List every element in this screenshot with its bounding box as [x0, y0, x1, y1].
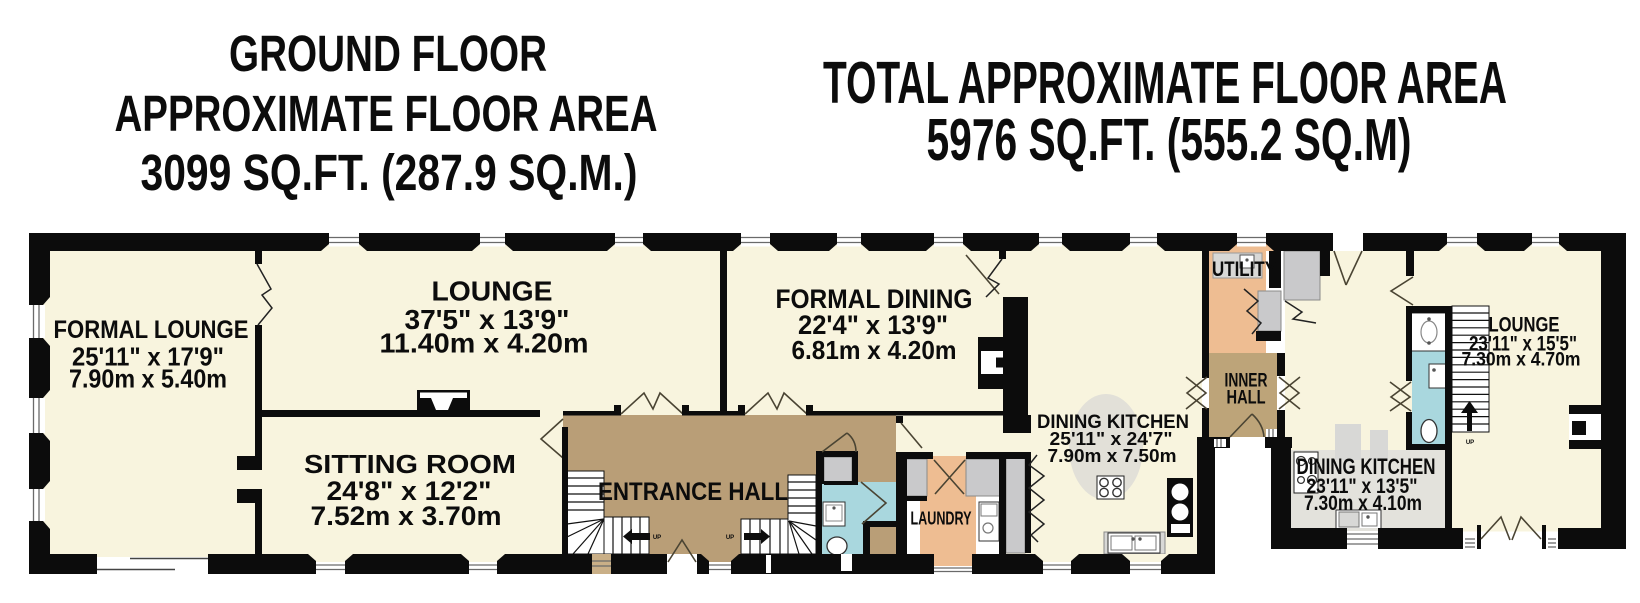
- svg-text:3099 SQ.FT. (287.9 SQ.M.): 3099 SQ.FT. (287.9 SQ.M.): [141, 144, 638, 201]
- svg-text:UTILITY: UTILITY: [1212, 258, 1276, 281]
- svg-text:7.30m x 4.10m: 7.30m x 4.10m: [1304, 492, 1422, 515]
- svg-text:LOUNGE: LOUNGE: [432, 276, 553, 307]
- svg-text:HALL: HALL: [1227, 388, 1266, 409]
- svg-text:ENTRANCE HALL: ENTRANCE HALL: [598, 478, 788, 506]
- svg-text:FORMAL LOUNGE: FORMAL LOUNGE: [54, 316, 249, 344]
- svg-text:5976 SQ.FT. (555.2 SQ.M): 5976 SQ.FT. (555.2 SQ.M): [927, 107, 1412, 173]
- svg-text:UP: UP: [1466, 440, 1474, 446]
- svg-text:7.90m x 5.40m: 7.90m x 5.40m: [69, 364, 227, 394]
- svg-text:7.90m x 7.50m: 7.90m x 7.50m: [1048, 445, 1177, 466]
- svg-text:7.30m x 4.70m: 7.30m x 4.70m: [1462, 350, 1581, 371]
- svg-text:6.81m x 4.20m: 6.81m x 4.20m: [792, 335, 957, 365]
- svg-text:GROUND FLOOR: GROUND FLOOR: [229, 25, 547, 82]
- svg-text:APPROXIMATE FLOOR AREA: APPROXIMATE FLOOR AREA: [115, 85, 658, 142]
- svg-text:7.52m x 3.70m: 7.52m x 3.70m: [311, 501, 502, 531]
- svg-text:LAUNDRY: LAUNDRY: [911, 509, 972, 529]
- svg-text:UP: UP: [653, 535, 661, 541]
- svg-text:UP: UP: [726, 535, 734, 541]
- svg-text:11.40m x 4.20m: 11.40m x 4.20m: [380, 328, 589, 359]
- svg-text:SITTING ROOM: SITTING ROOM: [304, 449, 516, 479]
